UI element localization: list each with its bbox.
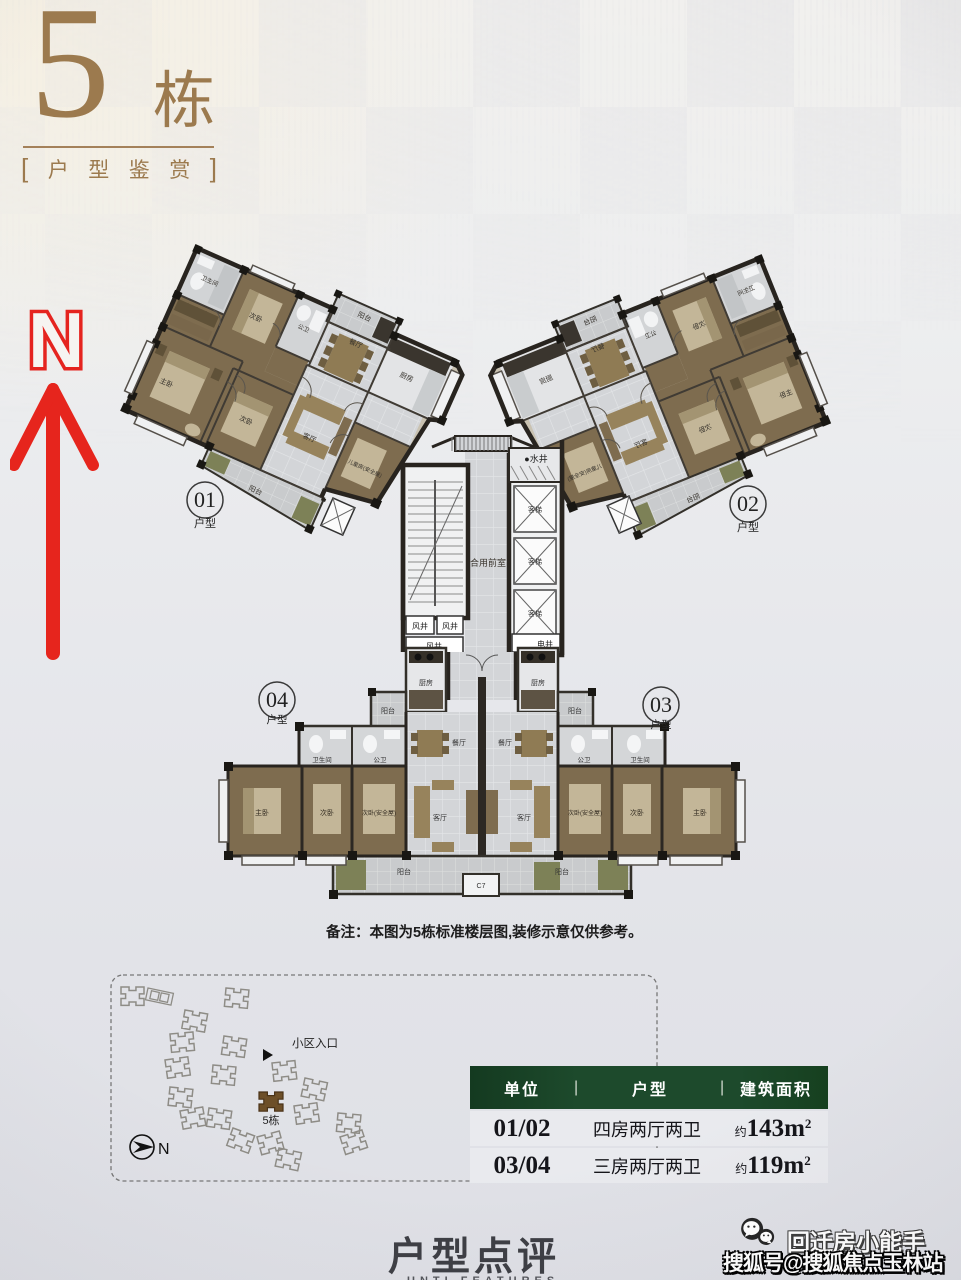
svg-text:公卫: 公卫: [578, 756, 592, 764]
svg-text:次卧: 次卧: [630, 808, 644, 817]
svg-text:●水井: ●水井: [524, 453, 547, 464]
svg-text:小区入口: 小区入口: [292, 1037, 338, 1050]
svg-text:N: N: [158, 1141, 170, 1158]
svg-text:风井: 风井: [412, 621, 428, 631]
svg-text:03: 03: [650, 692, 672, 717]
svg-text:C7: C7: [477, 883, 486, 890]
svg-text:户型: 户型: [194, 516, 216, 530]
svg-text:客厅: 客厅: [517, 813, 531, 822]
svg-text:卫生间: 卫生间: [312, 755, 332, 764]
svg-text:阳台: 阳台: [555, 867, 569, 876]
svg-text:厨房: 厨房: [419, 678, 433, 687]
svg-text:次卧(安全屋): 次卧(安全屋): [362, 809, 396, 817]
svg-text:户型: 户型: [737, 520, 759, 534]
svg-text:02: 02: [737, 491, 759, 516]
svg-text:主卧: 主卧: [255, 808, 269, 817]
svg-text:阳台: 阳台: [397, 867, 411, 876]
svg-text:公卫: 公卫: [374, 756, 388, 764]
svg-text:阳台: 阳台: [381, 706, 395, 715]
svg-text:客厅: 客厅: [433, 813, 447, 822]
svg-text:次卧(安全屋): 次卧(安全屋): [568, 809, 602, 817]
svg-text:阳台: 阳台: [568, 706, 582, 715]
svg-text:客梯: 客梯: [528, 557, 542, 566]
svg-text:餐厅: 餐厅: [452, 738, 466, 747]
svg-text:04: 04: [266, 687, 288, 712]
svg-text:合用前室: 合用前室: [470, 557, 506, 568]
svg-text:户型: 户型: [267, 713, 288, 726]
svg-text:5栋: 5栋: [262, 1113, 279, 1127]
svg-text:次卧: 次卧: [320, 808, 334, 817]
svg-text:主卧: 主卧: [693, 808, 707, 817]
svg-text:客梯: 客梯: [528, 505, 542, 514]
svg-text:卫生间: 卫生间: [630, 755, 650, 764]
svg-text:厨房: 厨房: [531, 678, 545, 687]
svg-text:客梯: 客梯: [528, 609, 542, 618]
svg-text:户型: 户型: [651, 718, 672, 731]
svg-text:风井: 风井: [442, 621, 458, 631]
svg-text:餐厅: 餐厅: [498, 738, 512, 747]
svg-text:01: 01: [194, 487, 216, 512]
